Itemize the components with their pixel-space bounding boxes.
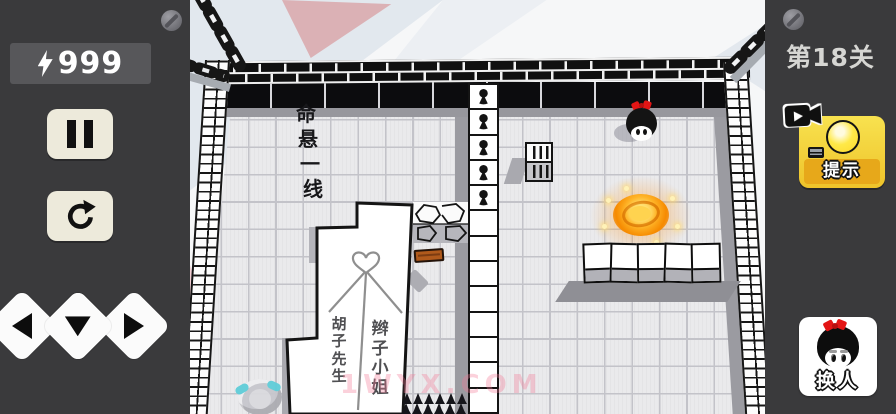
spike-row [401,403,466,414]
white-block [637,243,667,283]
keyhole-icon [477,139,490,156]
orb-core [629,206,651,221]
wood-plank [414,248,445,263]
gate-bars-icon [529,146,549,159]
level-indicator: 第18关 [765,38,896,74]
white-block [582,242,613,283]
fire-orb [598,184,684,248]
gate-bars-icon [529,165,549,178]
game-screen: 命悬一线 [0,0,896,414]
spike-icon [412,403,422,414]
dpad [0,300,190,414]
keyhole-tiles [470,85,497,211]
restart-button[interactable] [47,191,113,241]
path-tile [470,338,497,363]
left-control-panel: 999 [0,0,190,414]
dpad-down-button[interactable] [41,289,115,363]
keyhole-tile [470,136,497,161]
path-tile [470,237,497,262]
hint-banner-label: 提示 [804,159,880,184]
keyhole-icon [477,113,490,130]
keyhole-icon [477,88,490,105]
left-arrow-icon [12,313,32,339]
block-front-face [639,268,665,281]
bulb-base [808,147,824,158]
keyhole-tile [470,186,497,211]
block-front-face [585,268,611,282]
keyhole-tile [470,161,497,186]
path-tile [470,262,497,287]
lightning-bolt-icon [38,50,53,77]
ghost-character [234,377,286,414]
keyhole-icon [477,189,490,206]
right-arrow-icon [124,313,144,339]
game-board: 命悬一线 [190,0,765,414]
white-block [663,243,694,284]
block-front-face [693,268,719,282]
down-arrow-icon [65,316,91,336]
energy-counter: 999 [10,43,151,84]
block-row [583,243,721,283]
floor-sign-text: 命悬一线 [293,104,319,204]
keyhole-tile-column [468,83,499,414]
block-front-face [612,268,638,282]
restart-icon [63,199,97,233]
block-front-face [665,268,691,282]
right-control-panel: 第18关 提示 换人 [765,0,896,414]
cracked-tiles [413,202,468,243]
ghost-face [249,389,271,409]
screw-icon [161,10,182,31]
spike-icon [456,403,466,414]
white-block [610,243,640,284]
watermark-text: 1WYX.COM [340,370,543,400]
top-wall-bricks [210,57,750,85]
spike-icon [445,403,455,414]
gate-cell [525,161,553,182]
video-ad-icon [784,100,824,132]
crack-pattern [413,202,468,243]
path-tile [470,313,497,338]
spike-icon [434,403,444,414]
face [631,126,652,141]
keyhole-tile [470,85,497,110]
pause-button[interactable] [47,109,113,159]
spike-icon [401,403,411,414]
screw-icon [783,9,804,30]
path-tile [470,287,497,312]
platform-shadow [555,281,741,302]
keyhole-icon [477,164,490,181]
switch-label: 换人 [799,366,877,393]
girl-character [626,100,658,146]
light-bulb-icon [826,120,860,154]
energy-count: 999 [58,49,124,79]
gate-window [525,142,553,182]
keyhole-tile [470,110,497,135]
path-tile [470,211,497,236]
spike-icon [423,403,433,414]
paper-shadow [309,227,318,263]
pause-icon [67,120,93,148]
white-block [691,243,721,284]
switch-character-button[interactable]: 换人 [799,317,877,396]
